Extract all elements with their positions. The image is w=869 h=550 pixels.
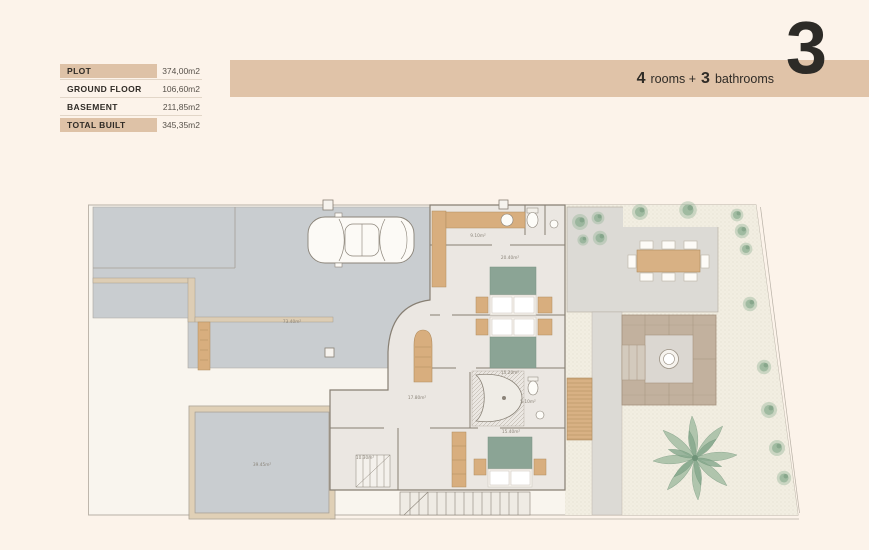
area-label-driveway: 73.40m² — [283, 319, 301, 325]
spec-value: 106,60m2 — [157, 84, 202, 94]
wardrobe — [452, 432, 466, 487]
spec-row-total-built: TOTAL BUILT 345,35m2 — [60, 116, 202, 133]
exterior-stairs — [400, 492, 530, 515]
spec-row-ground-floor: GROUND FLOOR 106,60m2 — [60, 80, 202, 98]
spec-table: PLOT 374,00m2 GROUND FLOOR 106,60m2 BASE… — [60, 62, 202, 133]
rooms-banner: 4 rooms + 3 bathrooms — [230, 60, 869, 97]
small-sink — [550, 220, 558, 228]
rooms-banner-text: 4 rooms + 3 bathrooms — [637, 60, 774, 97]
area-label-bedroom-1: 20.40m² — [501, 255, 519, 261]
area-label-storage: 39.45m² — [253, 462, 271, 468]
wood-deck — [567, 378, 592, 440]
spec-label: TOTAL BUILT — [60, 118, 157, 132]
kitchen-sink — [501, 214, 513, 226]
area-label-west-room: 10.30m² — [356, 455, 374, 461]
bathrooms-count: 3 — [701, 70, 710, 88]
brochure-page: { "header": { "spec_table": { "rows": [ … — [0, 0, 869, 550]
spec-label: BASEMENT — [60, 100, 157, 114]
spec-row-basement: BASEMENT 211,85m2 — [60, 98, 202, 116]
arched-niche — [414, 330, 432, 382]
floor-plan-drawing: 73.40m²39.45m²9.10m²20.40m²15.20m²5.10m²… — [88, 197, 800, 522]
rooms-count: 4 — [637, 70, 646, 88]
toilet-2 — [528, 381, 538, 395]
sunken-lounge — [622, 315, 716, 405]
spec-value: 211,85m2 — [157, 102, 202, 112]
garden-path — [592, 312, 622, 515]
area-label-bedroom-3: 15.40m² — [502, 429, 520, 435]
bed-3 — [452, 432, 546, 487]
bathrooms-label: bathrooms — [715, 72, 774, 86]
toilet — [527, 213, 538, 228]
floor-plan: 73.40m²39.45m²9.10m²20.40m²15.20m²5.10m²… — [88, 197, 800, 522]
spec-value: 345,35m2 — [157, 120, 202, 130]
plan-number: 3 — [786, 14, 827, 82]
lounge-steps — [622, 345, 645, 380]
spec-row-plot: PLOT 374,00m2 — [60, 62, 202, 80]
spec-label: PLOT — [60, 64, 157, 78]
area-label-bathroom: 5.10m² — [520, 399, 536, 405]
area-label-hall: 17.80m² — [408, 395, 426, 401]
outdoor-dining-table — [628, 241, 709, 281]
area-label-corridor: 15.20m² — [501, 370, 519, 376]
rooms-label: rooms + — [651, 72, 697, 86]
spec-value: 374,00m2 — [157, 66, 202, 76]
spec-label: GROUND FLOOR — [60, 82, 157, 96]
sink-2 — [536, 411, 544, 419]
area-label-laundry: 9.10m² — [470, 233, 486, 239]
car — [308, 213, 414, 267]
